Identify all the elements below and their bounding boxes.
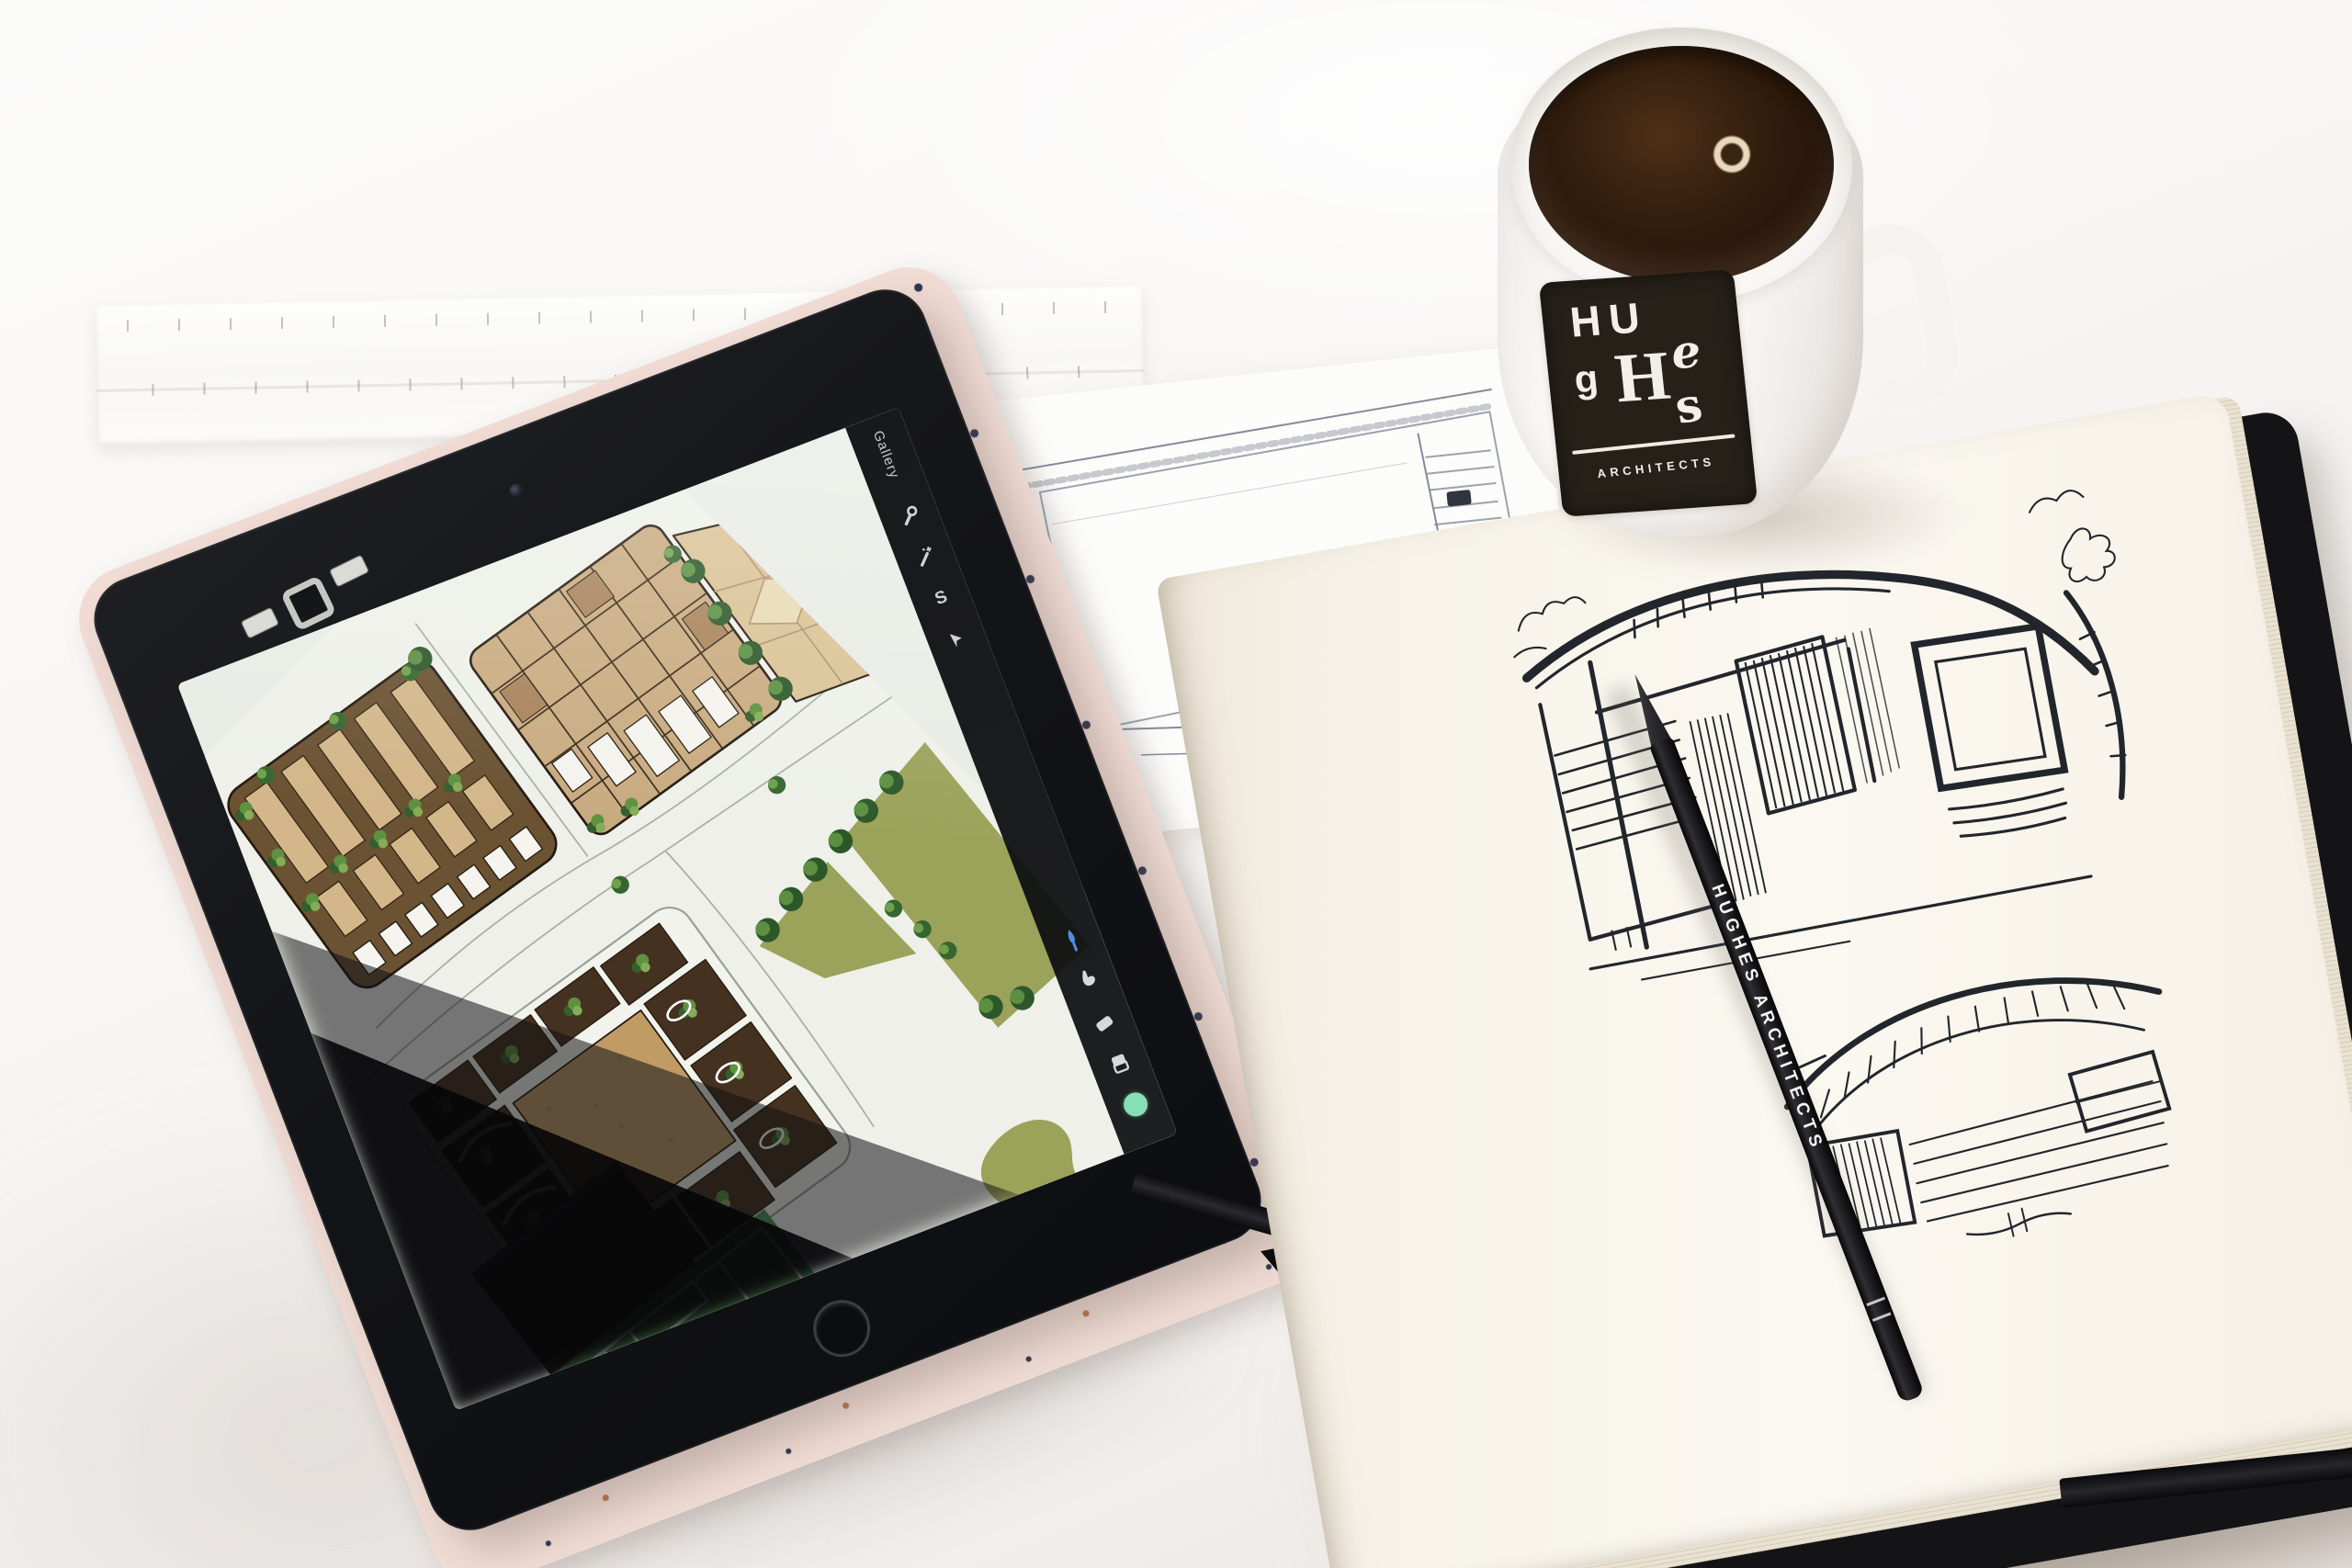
paint-brush-icon bbox=[1052, 919, 1092, 960]
pencil-ring bbox=[1866, 1297, 1885, 1306]
smudge-icon bbox=[1068, 961, 1108, 1001]
bezel-reflection bbox=[330, 555, 369, 587]
selection-icon-letter: S bbox=[933, 587, 951, 610]
mug-logo-letter-e: e bbox=[1668, 323, 1703, 379]
layers-icon bbox=[1100, 1043, 1140, 1084]
eraser-icon bbox=[1084, 1002, 1125, 1043]
coffee-surface bbox=[1529, 46, 1834, 283]
mug-logo-letter-g: g bbox=[1572, 356, 1600, 402]
mug-logo-divider bbox=[1572, 434, 1736, 455]
mug-logo-subtitle: ARCHITECTS bbox=[1558, 451, 1754, 485]
selection-icon: S bbox=[921, 578, 961, 618]
gallery-button: Gallery bbox=[870, 429, 902, 481]
color-swatch-dot bbox=[1120, 1089, 1151, 1121]
mug-logo-letter-s: s bbox=[1669, 377, 1706, 434]
mug-logo: HU g H e s ARCHITECTS bbox=[1539, 269, 1758, 516]
color-swatch bbox=[1115, 1084, 1156, 1124]
transform-arrow-icon bbox=[937, 619, 978, 660]
wrench-icon bbox=[889, 496, 930, 536]
bezel-reflection bbox=[241, 607, 278, 638]
coffee-light-reflection bbox=[1711, 134, 1753, 175]
desk-photo-scene: Gallery S bbox=[0, 0, 2352, 1568]
front-camera bbox=[507, 481, 525, 499]
magic-wand-icon bbox=[905, 536, 945, 577]
ruler-tick-row bbox=[127, 301, 1119, 333]
coffee-mug: HU g H e s ARCHITECTS bbox=[1477, 11, 1973, 581]
home-button bbox=[805, 1292, 878, 1365]
mug-logo-letter-h: H bbox=[1611, 335, 1674, 419]
bezel-reflection-square bbox=[280, 575, 337, 632]
pencil-ring bbox=[1872, 1313, 1892, 1322]
